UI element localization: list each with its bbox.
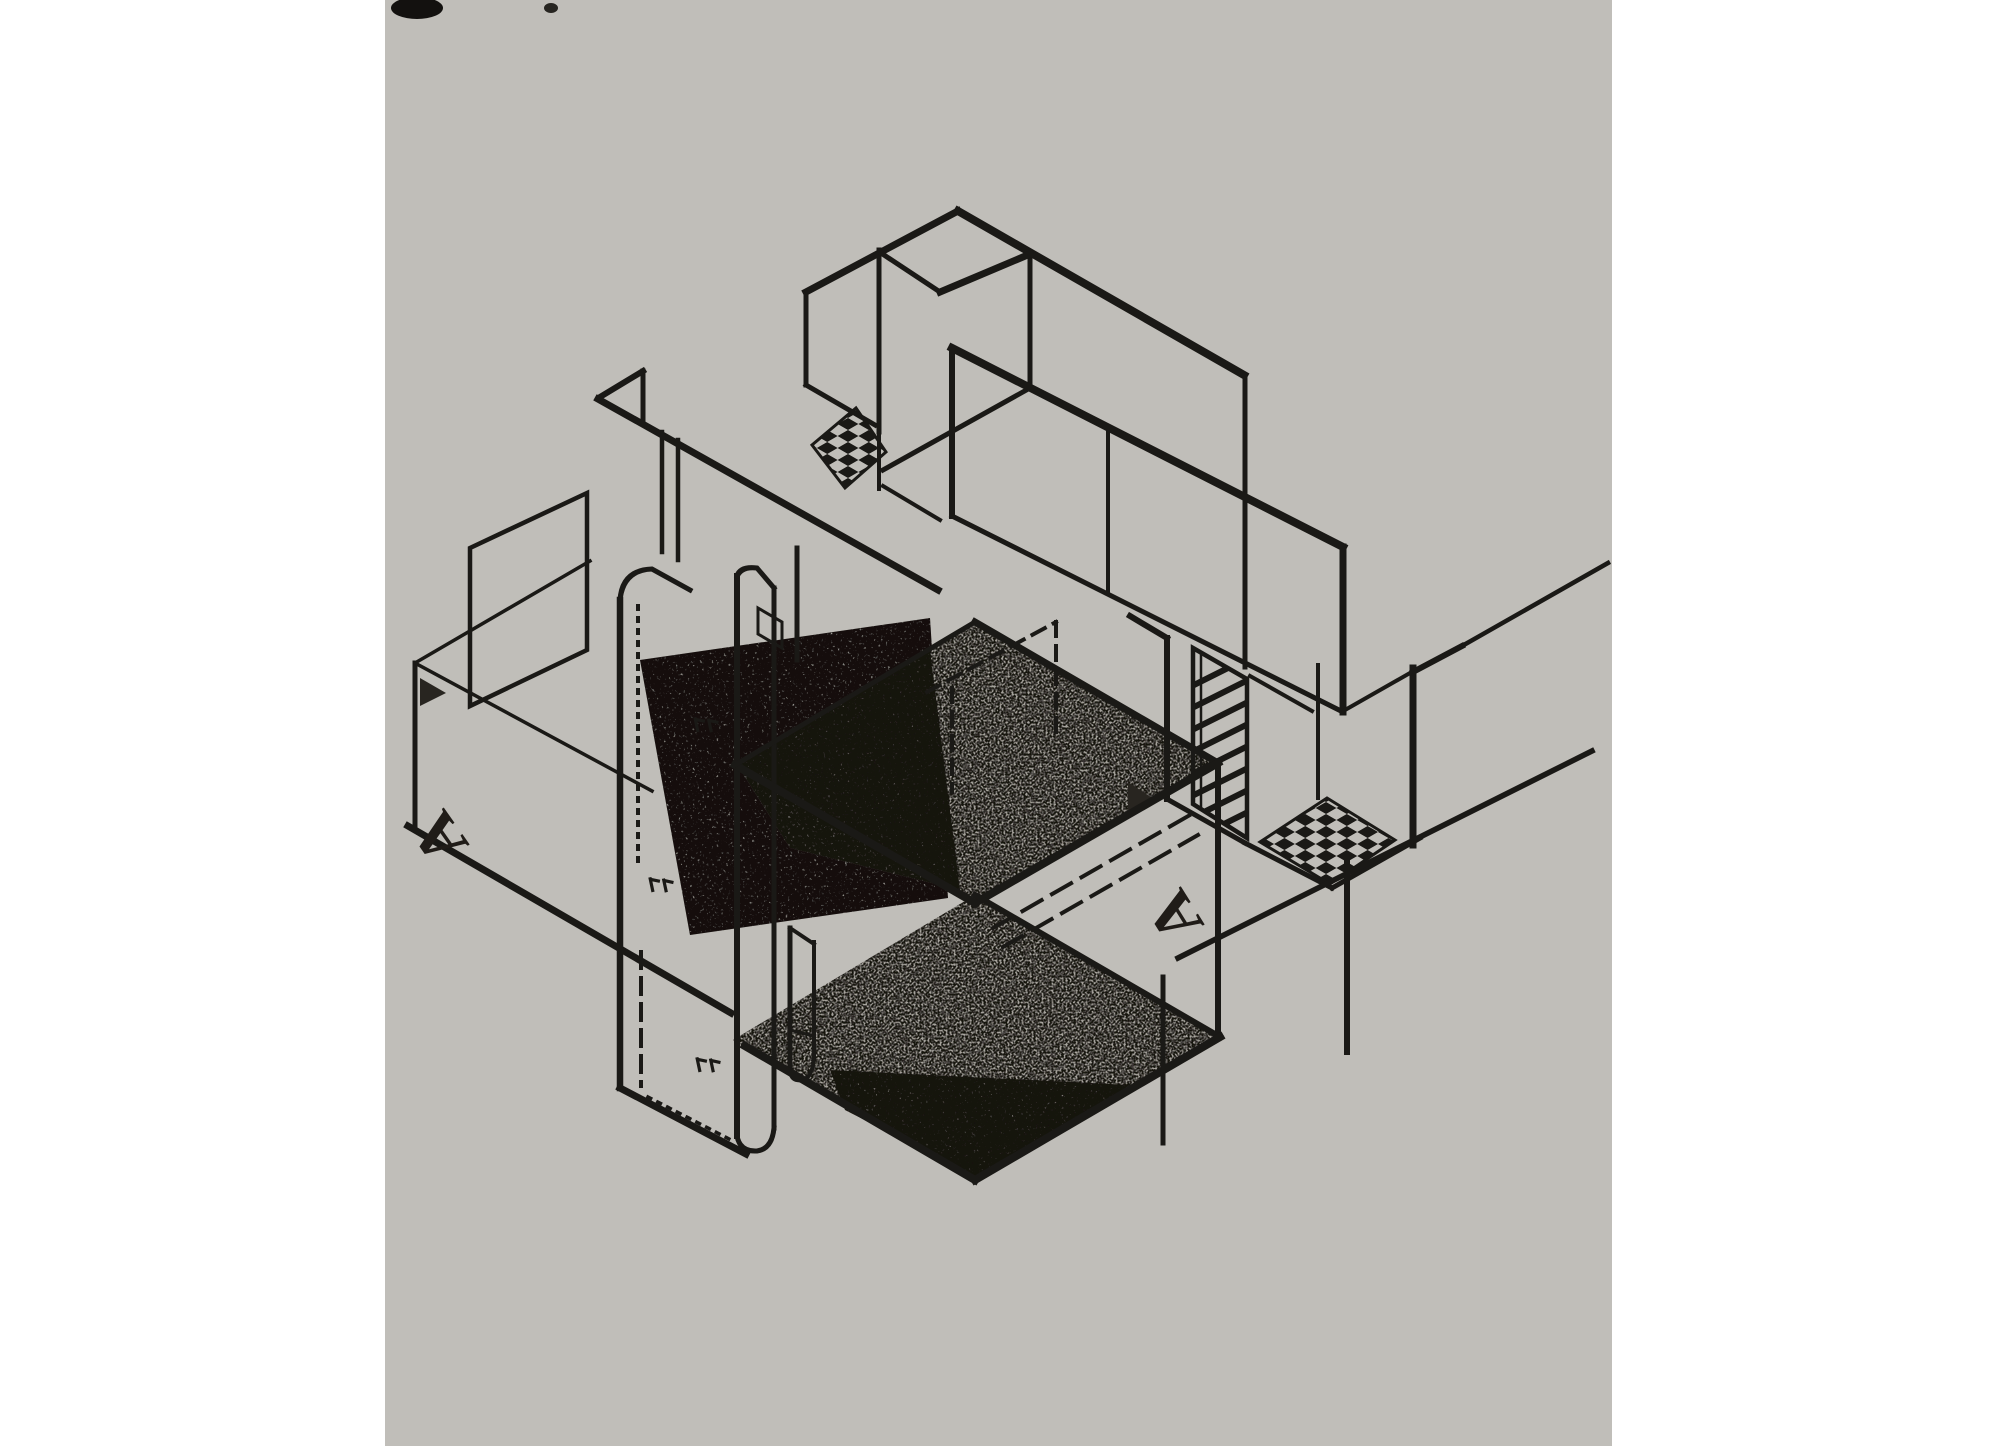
axonometric-drawing: A A	[0, 0, 2000, 1446]
scan-grain-overlay	[385, 0, 1612, 1446]
scanned-page: A A	[0, 0, 2000, 1446]
